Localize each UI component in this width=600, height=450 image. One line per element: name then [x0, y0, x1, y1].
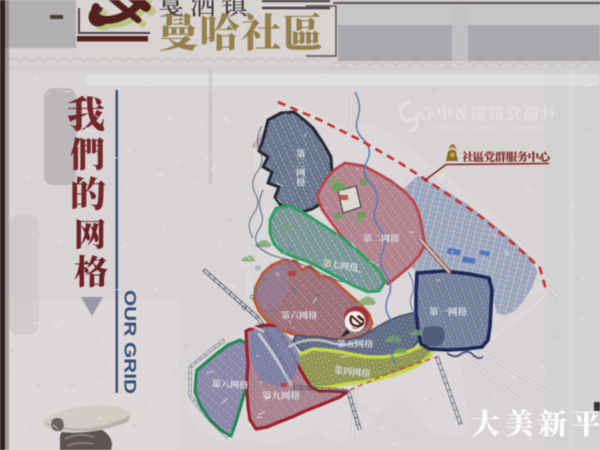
svg-text:OUR GRID: OUR GRID: [121, 290, 139, 394]
svg-text:COMMUNITY SERVICE CENTER: COMMUNITY SERVICE CENTER: [434, 125, 545, 132]
